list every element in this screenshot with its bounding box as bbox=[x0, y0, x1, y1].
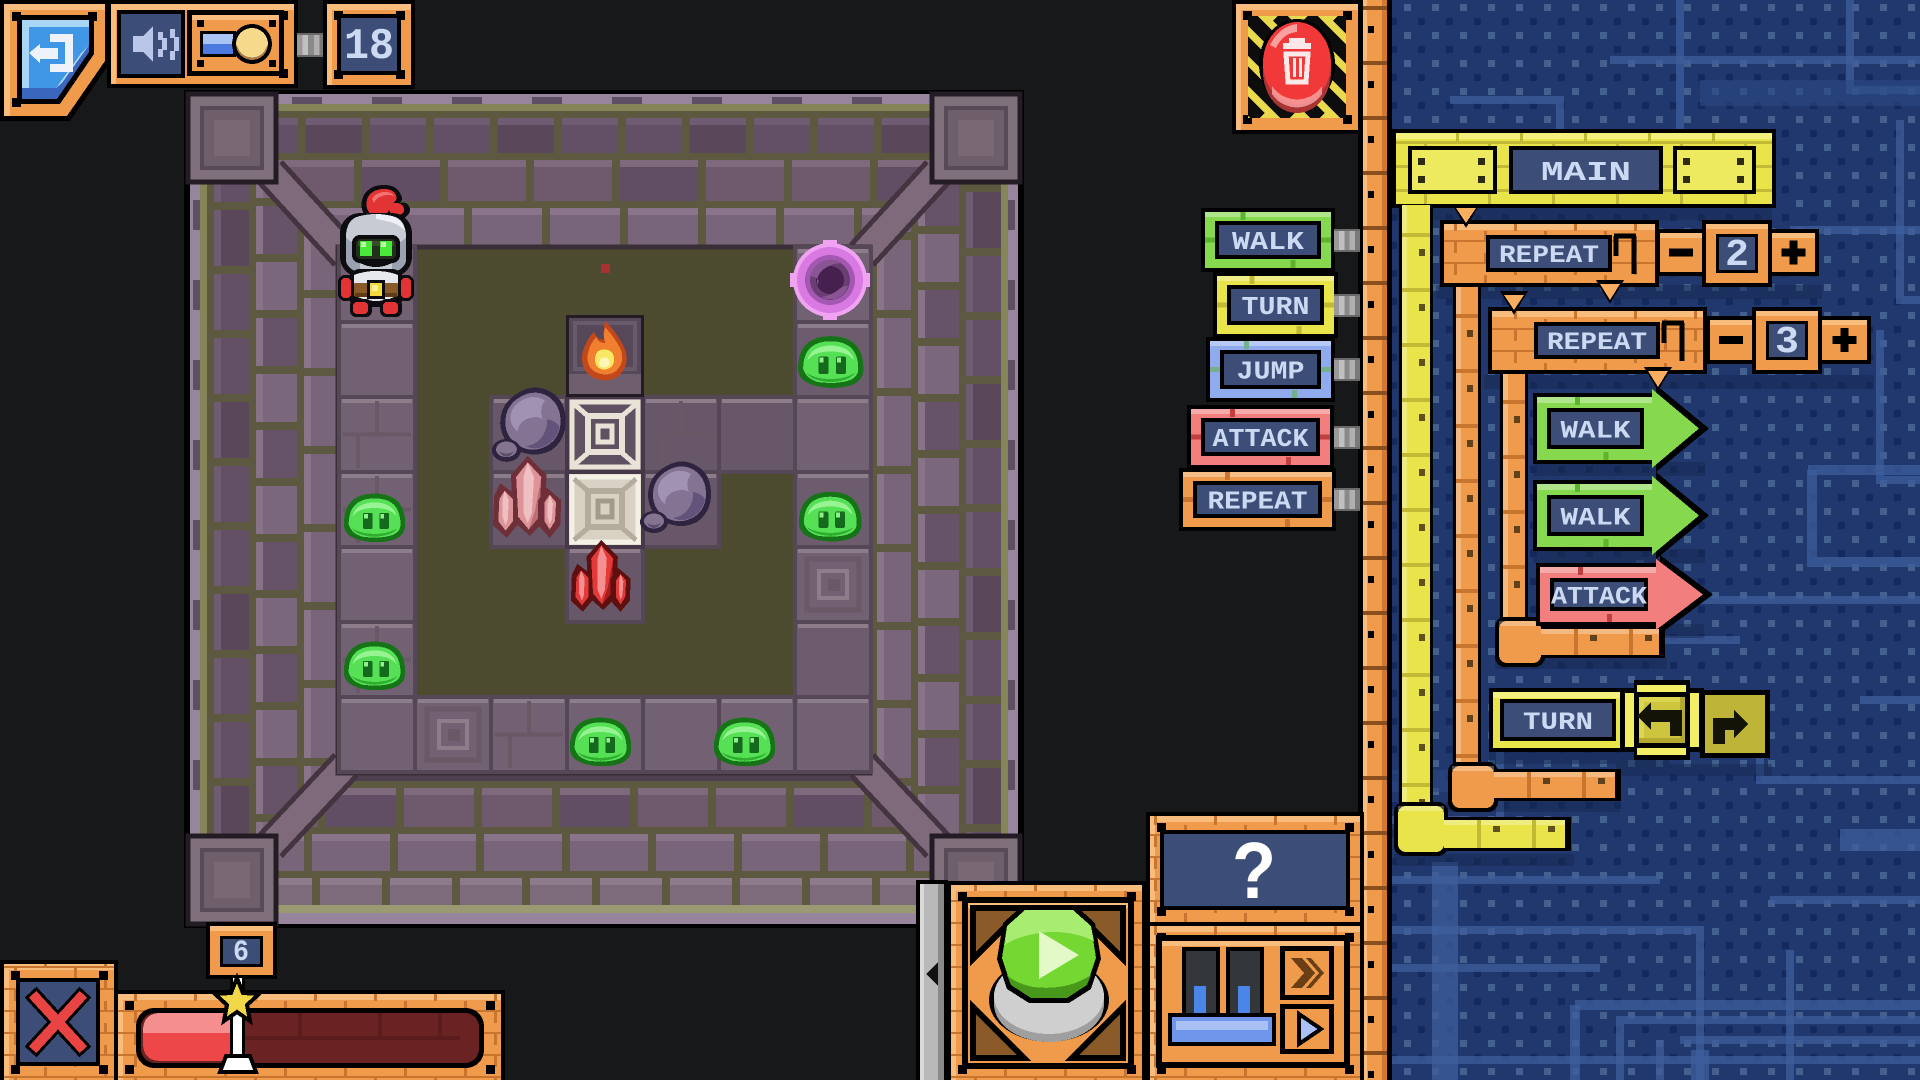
svg-text:3: 3 bbox=[1775, 321, 1799, 364]
svg-text:TURN: TURN bbox=[1523, 708, 1593, 737]
svg-text:18: 18 bbox=[344, 22, 394, 72]
svg-text:REPEAT: REPEAT bbox=[1499, 241, 1599, 270]
svg-text:REPEAT: REPEAT bbox=[1547, 328, 1647, 357]
svg-text:ATTACK: ATTACK bbox=[1213, 424, 1309, 454]
svg-text:MAIN: MAIN bbox=[1541, 159, 1631, 189]
svg-text:WALK: WALK bbox=[1561, 417, 1631, 446]
svg-text:6: 6 bbox=[233, 936, 249, 970]
svg-text:WALK: WALK bbox=[1561, 504, 1631, 533]
svg-text:ATTACK: ATTACK bbox=[1551, 583, 1647, 612]
svg-text:JUMP: JUMP bbox=[1237, 357, 1305, 387]
svg-text:?: ? bbox=[1232, 826, 1276, 915]
svg-text:TURN: TURN bbox=[1242, 292, 1310, 322]
svg-text:2: 2 bbox=[1725, 234, 1749, 277]
svg-text:REPEAT: REPEAT bbox=[1208, 487, 1308, 517]
svg-text:WALK: WALK bbox=[1232, 227, 1304, 257]
